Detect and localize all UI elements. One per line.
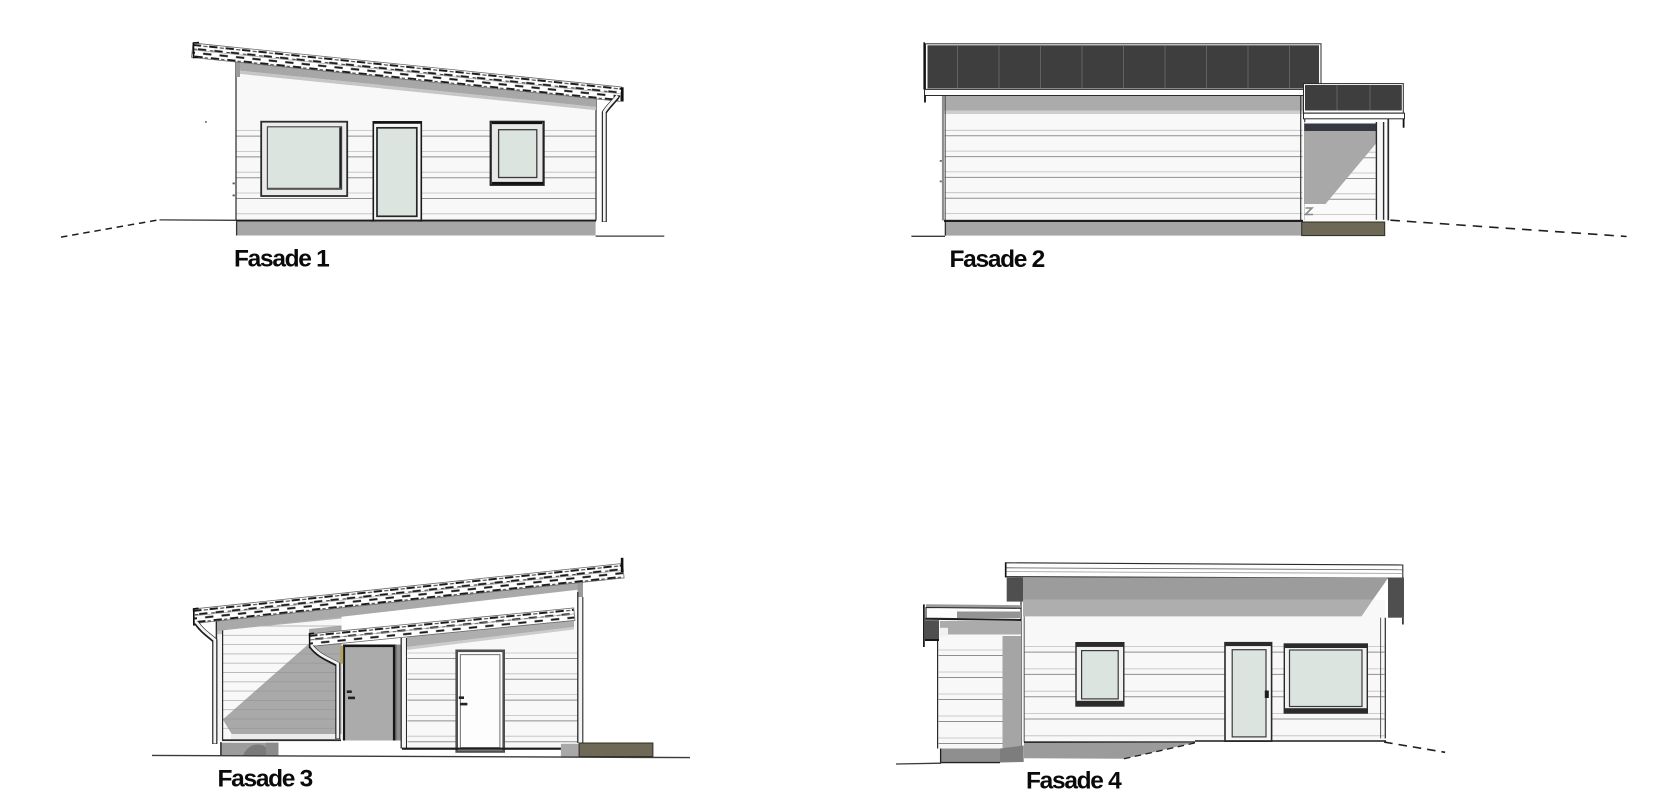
svg-text:Fasade 3: Fasade 3 bbox=[218, 765, 313, 792]
svg-text:Fasade 1: Fasade 1 bbox=[234, 246, 329, 273]
svg-text:Fasade 2: Fasade 2 bbox=[950, 246, 1045, 273]
svg-text:Fasade 4: Fasade 4 bbox=[1026, 767, 1122, 794]
